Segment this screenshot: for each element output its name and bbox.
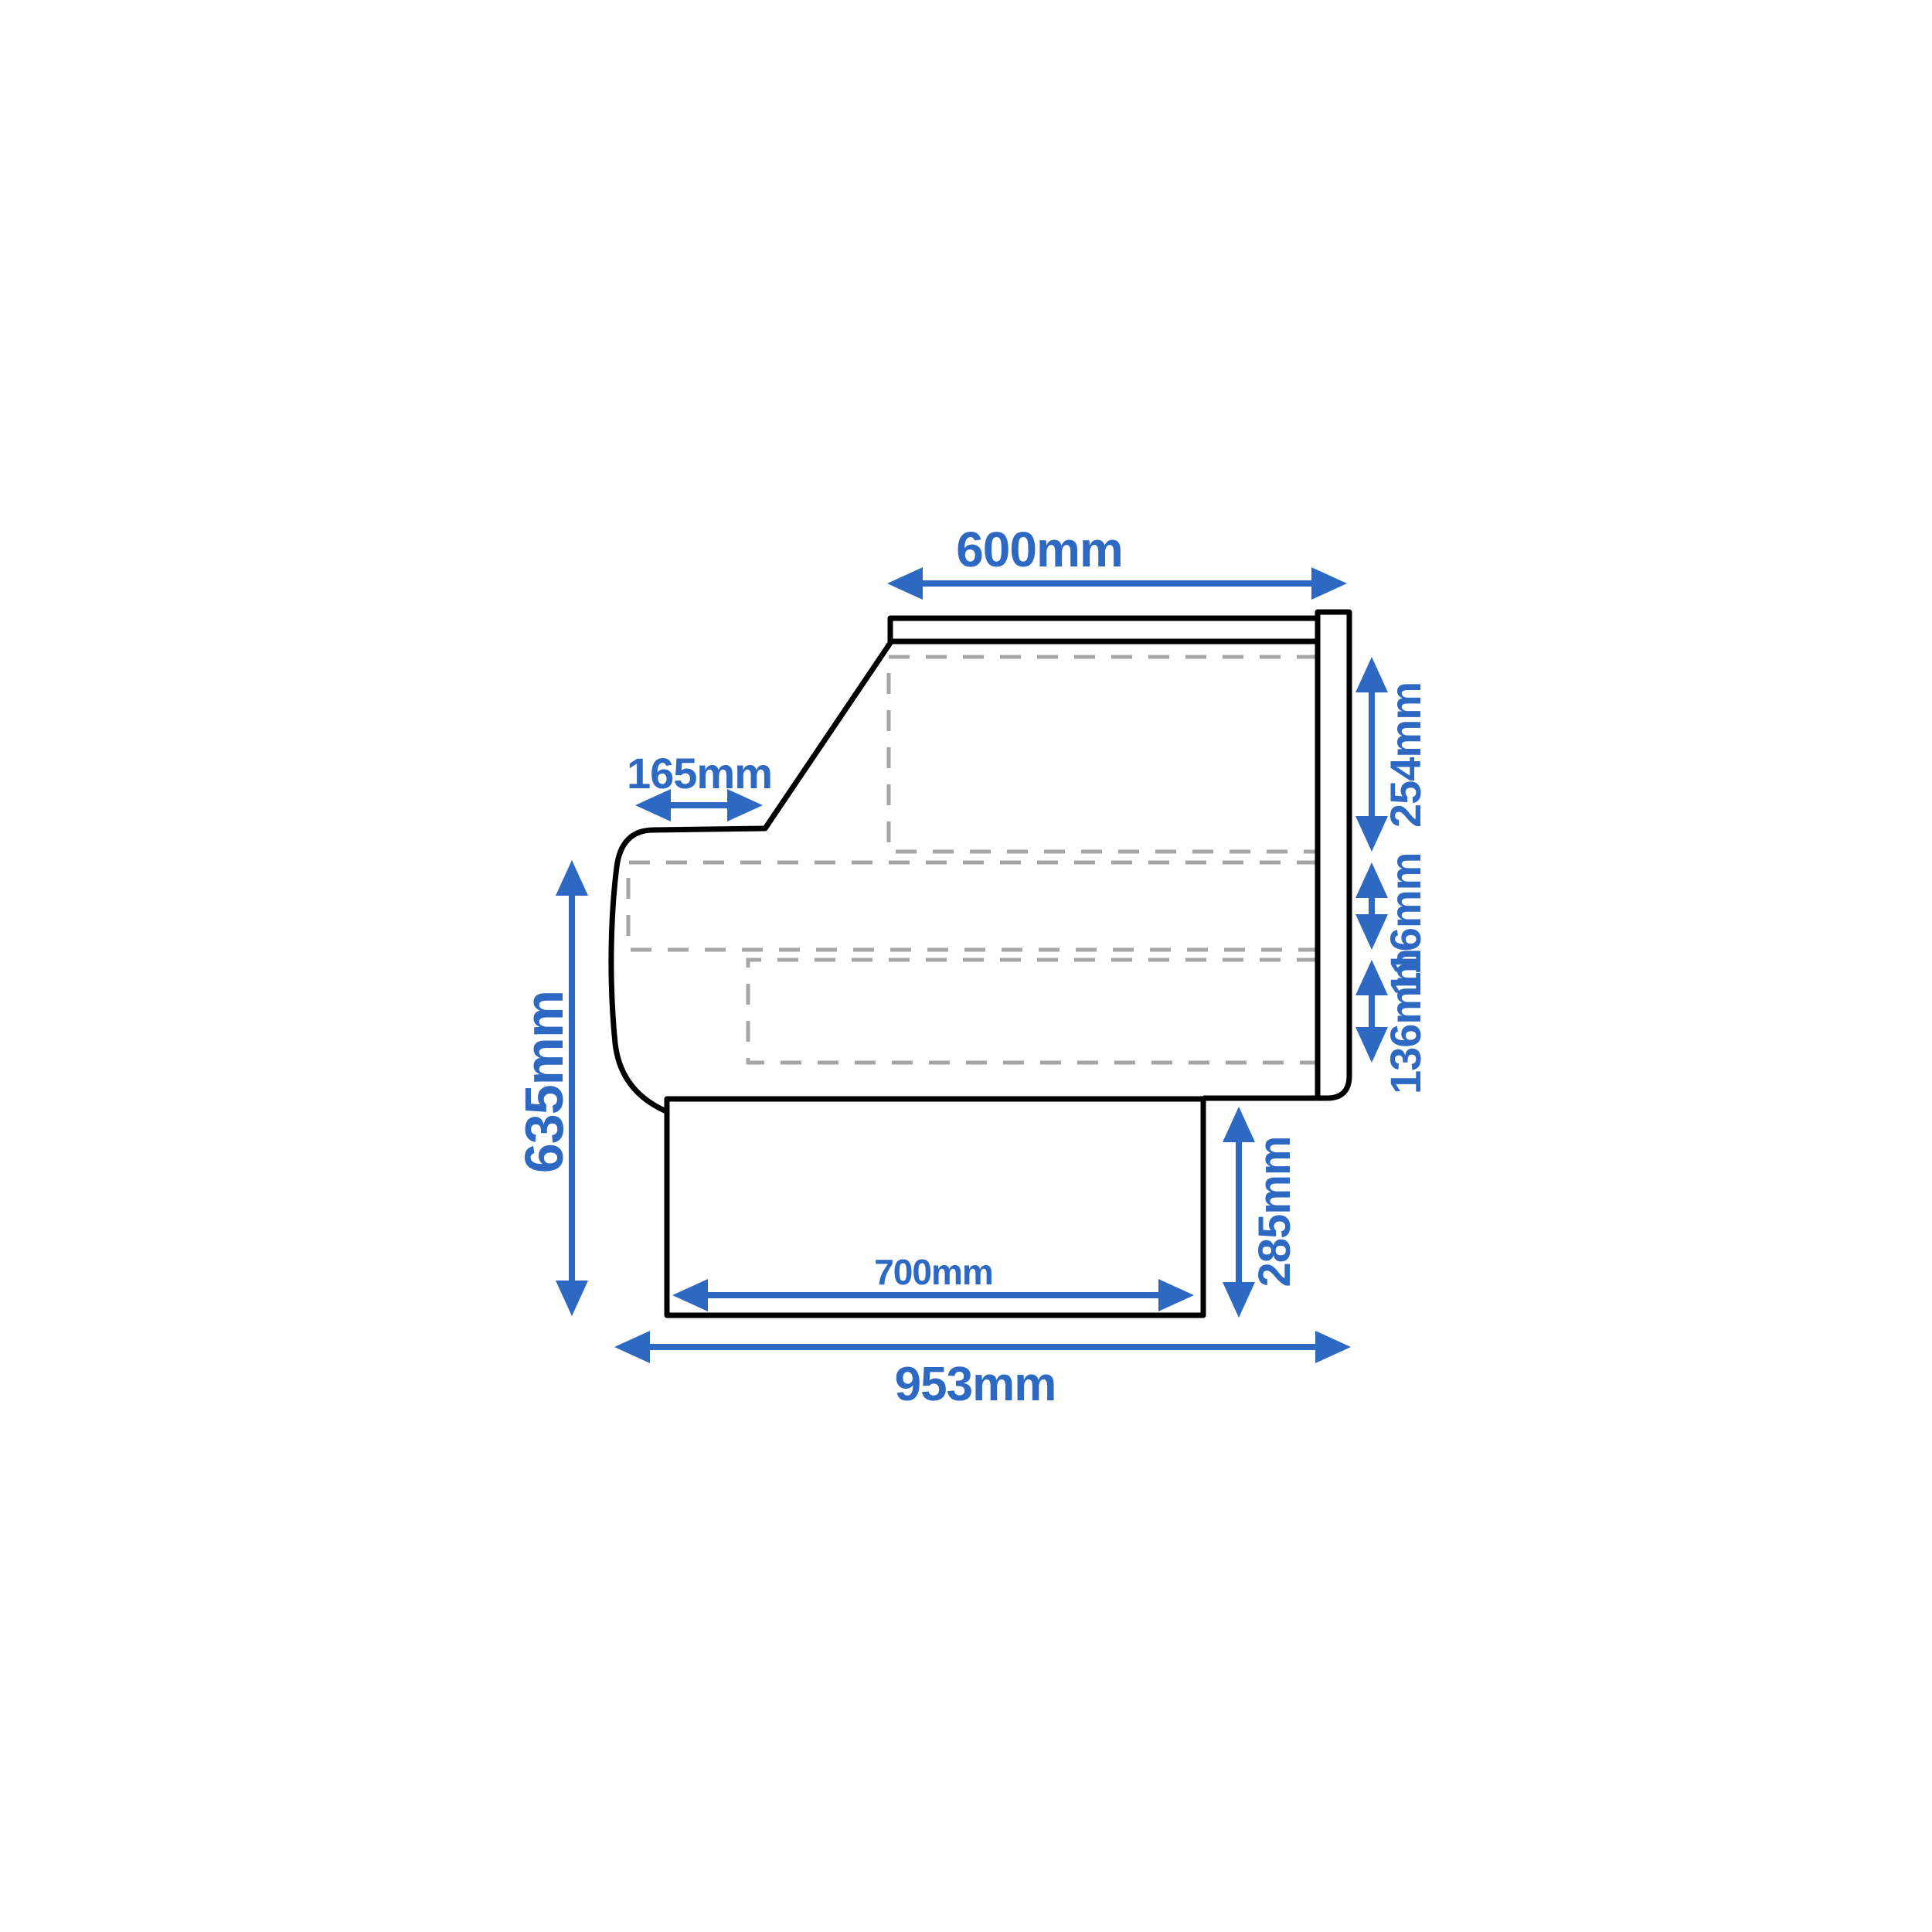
arrow-left-icon: [672, 1279, 708, 1311]
arrow-left-icon: [614, 1331, 650, 1363]
dim-lower-shelf-label: 136mm: [1381, 949, 1430, 1094]
dim-base-height: 285mm: [1223, 1107, 1300, 1318]
dim-front-height-label: 635mm: [514, 991, 574, 1173]
dim-top-depth-label: 600mm: [956, 522, 1123, 577]
dim-overall-depth: 953mm: [614, 1331, 1351, 1411]
arrow-down-icon: [556, 1281, 588, 1316]
technical-drawing-canvas: 600mm 165mm 254mm 116mm 136m: [0, 0, 1932, 1932]
dim-lower-shelf-height: 136mm: [1355, 949, 1430, 1094]
lower-shelf-hidden-outline: [748, 960, 1318, 1063]
rear-panel-and-bottom-edge: [1203, 612, 1349, 1098]
middle-shelf-hidden-outline: [628, 862, 1318, 950]
dim-base-depth: 700mm: [672, 1252, 1194, 1311]
counter-side-profile-diagram: 600mm 165mm 254mm 116mm 136m: [0, 0, 1932, 1932]
dim-top-depth: 600mm: [887, 522, 1347, 600]
dim-base-height-label: 285mm: [1250, 1137, 1300, 1287]
dim-slope-depth-label: 165mm: [627, 749, 772, 798]
dim-overall-depth-label: 953mm: [895, 1358, 1056, 1411]
counter-top-strip: [890, 618, 1318, 641]
dim-front-height: 635mm: [514, 860, 588, 1316]
dim-slope-depth: 165mm: [627, 749, 772, 821]
dim-base-depth-label: 700mm: [874, 1252, 993, 1292]
dim-upper-shelf-height: 254mm: [1355, 657, 1430, 852]
arrow-up-icon: [556, 860, 588, 896]
arrow-right-icon: [1311, 567, 1347, 600]
dim-upper-shelf-label: 254mm: [1381, 682, 1430, 828]
arrow-right-icon: [1158, 1279, 1194, 1311]
arrow-right-icon: [1315, 1331, 1351, 1363]
arrow-left-icon: [887, 567, 923, 600]
front-curved-profile: [611, 643, 890, 1111]
upper-shelf-hidden-outline: [889, 657, 1318, 852]
